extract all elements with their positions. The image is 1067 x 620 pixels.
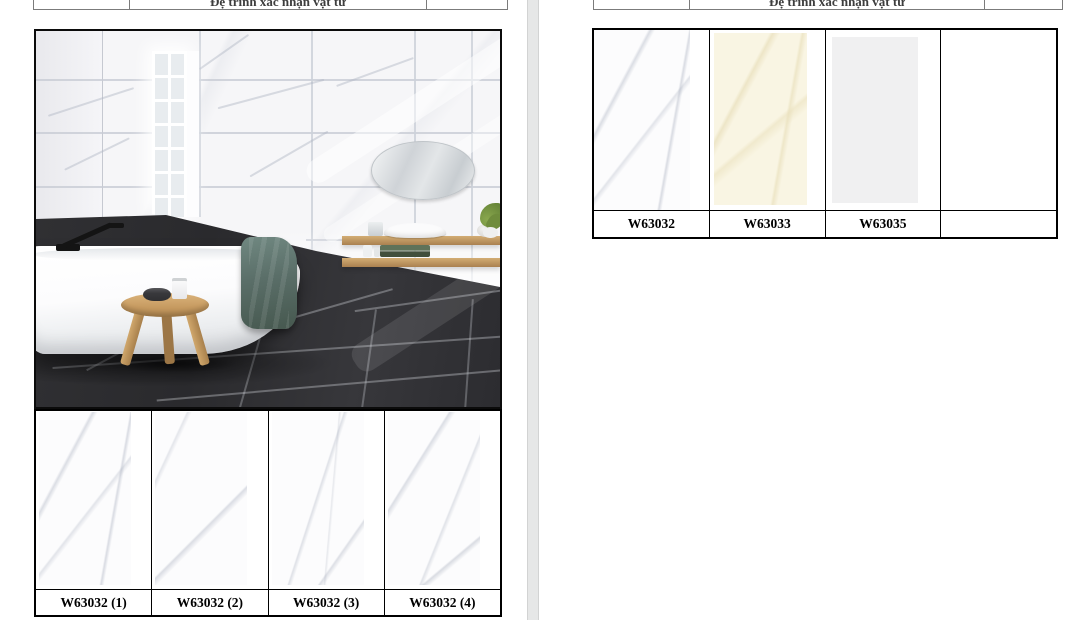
- document-view: Đệ trình xác nhận vật tư: [0, 0, 1067, 620]
- window-panes: [155, 54, 190, 217]
- page-2[interactable]: Đệ trình xác nhận vật tư W63032 W63033: [539, 0, 1067, 620]
- stool-shadow: [114, 355, 236, 373]
- stool-canister: [172, 281, 187, 299]
- header-title: Đệ trình xác nhận vật tư: [769, 0, 905, 8]
- sample-label[interactable]: W63032 (3): [268, 590, 384, 615]
- draped-towel: [241, 237, 297, 329]
- sample-cell-empty[interactable]: [940, 30, 1056, 210]
- sample-cell[interactable]: [709, 30, 825, 210]
- header-row: Đệ trình xác nhận vật tư: [593, 0, 1063, 10]
- shelf-canister: [368, 222, 383, 236]
- sample-cell[interactable]: [151, 411, 267, 589]
- tile-w63032-4[interactable]: [388, 412, 480, 585]
- header-cell-left[interactable]: [594, 0, 689, 9]
- sample-image-row: [594, 30, 1056, 210]
- tile-w63032-3[interactable]: [272, 412, 364, 585]
- tile-w63033[interactable]: [714, 33, 807, 205]
- marble-vein: [336, 57, 414, 87]
- basin-bowl: [384, 223, 446, 238]
- tile-w63035[interactable]: [832, 37, 918, 203]
- sample-label[interactable]: W63033: [709, 211, 825, 237]
- faucet-spout: [108, 223, 124, 228]
- oval-mirror: [371, 141, 475, 200]
- sample-cell[interactable]: [384, 411, 500, 589]
- sample-label[interactable]: W63032: [594, 211, 709, 237]
- sample-image-row: [36, 411, 500, 589]
- bathroom-photo[interactable]: [34, 29, 502, 409]
- header-cell-left[interactable]: [34, 0, 129, 9]
- sample-label[interactable]: W63032 (2): [151, 590, 267, 615]
- tile-w63032-1[interactable]: [39, 412, 131, 585]
- shelf-bottom: [342, 258, 500, 267]
- header-cell-right[interactable]: [426, 0, 507, 9]
- wall-grout-line: [36, 79, 500, 81]
- marble-vein: [218, 79, 325, 109]
- towel-folds: [249, 237, 289, 329]
- sample-label[interactable]: W63032 (1): [36, 590, 151, 615]
- sample-table-page1: W63032 (1) W63032 (2) W63032 (3) W63032 …: [34, 409, 502, 617]
- header-cell-title[interactable]: Đệ trình xác nhận vật tư: [689, 0, 984, 9]
- sample-label-row: W63032 W63033 W63035: [594, 210, 1056, 237]
- tile-w63032[interactable]: [594, 30, 690, 210]
- plant-pot: [483, 227, 498, 238]
- header-row: Đệ trình xác nhận vật tư: [33, 0, 508, 10]
- bathroom-scene: [36, 31, 500, 407]
- wall-grout-line: [199, 31, 201, 217]
- stool-jar: [143, 288, 171, 301]
- sample-table-page2: W63032 W63033 W63035: [592, 28, 1058, 239]
- left-wall: [36, 31, 103, 231]
- header-cell-right[interactable]: [984, 0, 1062, 9]
- header-cell-title[interactable]: Đệ trình xác nhận vật tư: [129, 0, 426, 9]
- window: [152, 51, 187, 214]
- shelf-jar: [374, 248, 380, 257]
- sample-cell[interactable]: [36, 411, 151, 589]
- wall-pillar: [187, 51, 199, 217]
- header-title: Đệ trình xác nhận vật tư: [210, 0, 346, 8]
- sample-label-row: W63032 (1) W63032 (2) W63032 (3) W63032 …: [36, 589, 500, 615]
- shelf-jar: [363, 245, 372, 257]
- sample-label[interactable]: W63032 (4): [384, 590, 500, 615]
- page-gap: [527, 0, 539, 620]
- sample-label[interactable]: W63035: [825, 211, 941, 237]
- marble-vein: [199, 34, 249, 70]
- wall-grout-line: [36, 132, 500, 134]
- sample-label[interactable]: [940, 211, 1056, 237]
- sample-cell[interactable]: [825, 30, 941, 210]
- folded-towels: [380, 245, 430, 257]
- tile-w63032-2[interactable]: [155, 412, 247, 585]
- sample-cell[interactable]: [268, 411, 384, 589]
- sample-cell[interactable]: [594, 30, 709, 210]
- page-1[interactable]: Đệ trình xác nhận vật tư: [0, 0, 528, 620]
